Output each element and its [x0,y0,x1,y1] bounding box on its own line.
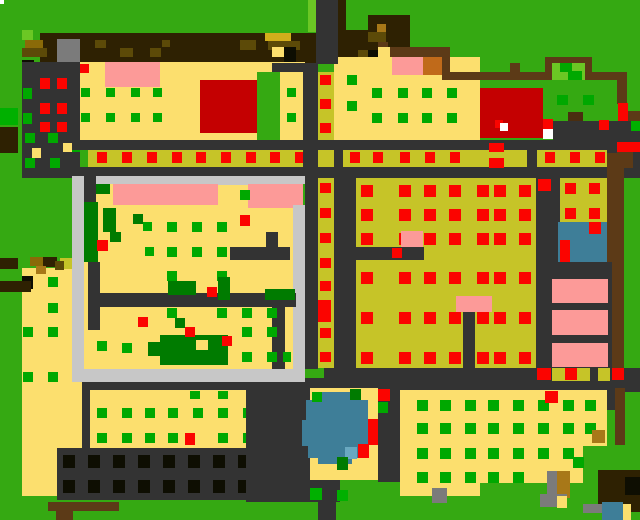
crop-dot [465,472,476,483]
dirt-speck [240,40,256,50]
bush [350,389,361,400]
crop-dot-red [449,185,461,197]
marker [560,240,570,262]
crop-dot [97,408,107,418]
path-red-south[interactable] [318,178,334,368]
path-dot [320,258,331,268]
road-main-horizontal [334,150,343,167]
marker [500,123,508,131]
crop-dot [167,222,177,232]
crop-dot-red [399,185,411,197]
lot-dot [48,133,58,143]
fence-wall[interactable] [448,72,618,80]
crop-dot [48,303,58,313]
lot-dot [32,148,41,158]
path-dot [565,368,577,380]
grass-strip [257,72,280,140]
crop-dot-red [361,209,373,221]
lot-dot [63,143,72,152]
road-bit [607,388,615,410]
field-southeast[interactable] [400,390,607,496]
crop-dot [267,327,277,337]
crop-dot-red [494,272,506,284]
path-dot [122,152,132,163]
parking-stall [188,480,200,493]
marker [599,120,609,130]
orchard-strip[interactable] [84,202,98,262]
path-dot [246,152,256,163]
crop-dot [513,448,524,459]
marker [318,300,331,322]
crop-dot [417,472,428,483]
crop-dot [218,433,228,443]
crop-dot-red [449,209,461,221]
crop-dot-red [361,312,373,324]
orchard [103,208,116,232]
crop-dot [513,423,524,434]
crop-dot [106,88,115,97]
road-main-horizontal[interactable] [72,140,640,150]
crop-dot [440,400,451,411]
rowhouse[interactable] [552,310,608,335]
parking-stall [63,455,75,468]
crop-dot-red [361,272,373,284]
crop-dot [283,352,291,362]
path-dot [537,368,551,380]
crop-dot [48,372,58,382]
marker [545,391,558,403]
crop-dot-red [449,272,461,284]
crop-dot [488,423,499,434]
shore [623,504,631,520]
crop-dot-red [424,233,436,245]
crop-dot [347,101,357,111]
pond-corner[interactable] [602,502,623,520]
crop-dot-red [477,272,489,284]
dirt-speck [95,40,106,48]
rowhouse[interactable] [552,343,608,367]
crop-dot [372,88,382,98]
crop-dot [131,113,140,122]
crop-dot [106,113,115,122]
crop-dot [422,88,432,98]
crop-dot [372,113,382,123]
path [583,504,603,513]
road-plaza-south[interactable] [246,390,310,482]
crop-dot-red [565,183,576,194]
dirt-speck [22,48,47,57]
path-dot [320,281,331,291]
path-dot [320,328,331,338]
crop-dot [145,247,154,256]
marker [489,158,504,168]
path-dot [450,152,460,163]
crop-dot-red [477,209,489,221]
parking-stall [63,480,75,493]
speck [55,261,64,270]
building-orange[interactable] [423,57,442,75]
crop-dot [417,448,428,459]
fence-wall [617,72,627,104]
crop-dot [23,372,33,382]
path-dot [595,152,605,163]
crop-dot [563,423,574,434]
crop-dot-red [519,185,531,197]
path-dot [612,368,624,380]
marker [489,143,504,152]
crop-dot-red [424,312,436,324]
crop-dot [153,88,162,97]
lot-dot [40,78,50,89]
game-map[interactable] [0,0,640,520]
lot-dot [23,113,32,124]
crop-dot [240,190,250,200]
lot-dot [57,122,67,132]
fence-wall[interactable] [390,47,450,57]
crop-dot [422,113,432,123]
crop-dot [145,433,155,443]
building-pink-ne[interactable] [392,57,423,75]
crop-dot-red [494,352,506,364]
hedge [265,289,295,300]
crop-dot-red [519,352,531,364]
marker [543,129,553,139]
fence-wall [628,111,640,121]
orchard [133,214,143,224]
crop-dot-red [519,272,531,284]
cursor-pixel [0,0,4,4]
crop-dot [48,277,58,287]
crop-dot-red [589,183,600,194]
crop-dot-red [477,352,489,364]
crop-dot-red [477,233,489,245]
path-dot [147,152,157,163]
path-dot [172,152,182,163]
building-pink-small[interactable] [401,231,423,247]
path-dot [320,352,331,362]
dirt-speck [120,48,133,57]
lot-dot [23,88,32,99]
road-north[interactable] [316,0,338,64]
fruit [97,240,108,251]
lot-dot [50,158,60,168]
crop-dot [81,113,90,122]
crop-dot-red [361,185,373,197]
path-dot [545,152,555,163]
fence-wall [510,63,520,72]
garden-wall-west[interactable] [72,176,84,382]
marker [617,142,640,152]
plaza-east[interactable] [553,121,640,141]
field-mustard-large[interactable] [356,178,536,368]
parking-stall [138,455,150,468]
lot-dot [57,103,67,114]
crop-dot [217,247,227,257]
crop-dot [122,408,132,418]
path-dot [97,152,107,163]
lane[interactable] [82,390,90,456]
crop-dot-red [449,352,461,364]
crop-dot-red [589,208,600,219]
pond-south[interactable] [306,400,368,422]
crop-dot-red [361,352,373,364]
crop-dot [242,327,252,337]
path-dot [400,152,410,163]
crop-dot-red [399,312,411,324]
stone [432,488,447,503]
crop-dot [465,423,476,434]
crop-dot [145,408,155,418]
clearing [196,340,208,350]
crop-dot [585,400,596,411]
crop-dot [218,408,228,418]
parking-stall [188,455,200,468]
crop-dot [573,457,584,468]
path-dot [373,152,383,163]
crop-dot-red [477,312,489,324]
crate [592,430,605,443]
stone-block[interactable] [57,39,80,63]
crop-dot [192,222,202,232]
crop-dot [347,75,357,85]
crop-dot [153,113,162,122]
orchard [96,184,110,194]
path-dot [320,233,331,243]
road-central-vertical[interactable] [305,178,318,369]
crop-dot [242,308,252,318]
bush-pen-wall [585,57,592,80]
wall-bit [615,388,625,445]
road-central-vertical[interactable] [334,178,356,368]
marker [538,179,551,191]
crop-dot-red [399,272,411,284]
tree-dot [557,95,568,105]
road-main-horizontal [303,150,318,167]
crop-dot-red [424,209,436,221]
speck [557,496,567,508]
path-dot [270,152,280,163]
path-dot [320,123,331,133]
tree-trunk [36,266,46,274]
crop-dot [465,448,476,459]
crop-dot-red [424,185,436,197]
marker [310,488,322,500]
crop-dot [417,400,428,411]
path-dot [350,152,360,163]
fruit [185,327,195,337]
crop-dot-red [494,312,506,324]
dirt-speck [162,40,170,47]
crop-dot [398,113,408,123]
crop-dot [287,113,296,122]
crop-dot [190,391,200,399]
path-dot [425,152,435,163]
crop-dot [168,433,178,443]
parking-stall [113,480,125,493]
lot-dot [25,158,35,168]
lot-dot [57,78,67,89]
crop-dot [218,391,228,399]
crop-dot [465,400,476,411]
crop-dot [538,423,549,434]
crop-dot [447,88,457,98]
crop-dot [563,400,574,411]
log [0,127,18,153]
crop-dot [23,327,33,337]
marker [79,64,89,73]
crop-dot [398,88,408,98]
marker [392,248,402,258]
lot-dot [40,122,50,132]
marker [589,222,601,234]
road-main-horizontal [527,150,537,167]
pond-south[interactable] [302,420,368,446]
crop-dot [48,327,58,337]
crop-dot [287,88,296,97]
lot-dot [40,103,50,114]
parking-stall [113,455,125,468]
path-dot [570,152,580,163]
path-dot [320,75,331,85]
marker [378,389,390,401]
fruit [222,336,232,346]
crop-dot-red [477,185,489,197]
crop-dot [131,88,140,97]
crop-dot-red [399,352,411,364]
road-vertical-short[interactable] [463,312,475,370]
crop-dot [81,88,90,97]
garden-wall-north [218,176,248,185]
field-wall[interactable] [343,247,424,260]
bush [568,71,582,80]
parking-stall [163,480,175,493]
crop-dot [217,308,227,318]
path-dot [320,208,331,218]
parking-stall [213,480,225,493]
crop-dot [122,343,132,353]
bush-pen-wall [545,57,552,80]
crop-dot [440,448,451,459]
crop-dot [167,271,177,281]
dirt-speck [284,47,296,63]
crop-dot [192,247,202,257]
parking-stall [138,480,150,493]
grass-highlight [22,30,33,40]
crop-dot [538,448,549,459]
crop-dot-red [494,185,506,197]
marker [631,121,640,131]
crop-dot-red [399,209,411,221]
crop-dot [97,341,107,351]
crop-dot [242,352,252,362]
fruit [185,433,195,445]
orchard [218,277,230,300]
lot-dot [25,133,35,143]
orchard [175,318,185,328]
bush [312,392,322,402]
orchard [168,281,196,295]
dirt-speck [150,48,161,57]
path-dot [221,152,231,163]
grass-patch [0,108,18,125]
crop-dot [97,433,107,443]
marker [358,444,369,458]
path-dot [320,183,331,193]
garden-wall-north[interactable] [72,176,305,184]
garden-inner-wall [84,176,96,204]
parking-stall [88,480,100,493]
crop-dot [168,408,178,418]
crop-dot-red [449,233,461,245]
crop-dot [167,247,177,257]
marker [618,103,628,121]
parking-stall [163,455,175,468]
crop-dot [488,472,499,483]
orchard-grove[interactable] [160,335,228,365]
tree-dot [583,95,594,105]
crop-dot [122,433,132,443]
crop-dot [267,308,277,318]
marker [543,119,553,129]
fruit [207,287,217,297]
log [0,258,18,269]
crop-dot [417,423,428,434]
parking-stall [213,455,225,468]
crop-dot [513,472,524,483]
path-southwest [56,502,73,520]
crop-dot [440,472,451,483]
path-red-bottom [598,368,610,381]
crop-dot-red [424,352,436,364]
dirt-speck [265,33,291,41]
dirt-edge [338,0,346,34]
tree-trunk [30,257,43,266]
path-dot [320,99,331,109]
garden-inner-wall[interactable] [230,247,290,260]
sapling [143,222,152,231]
crop-dot [193,408,203,418]
building-red-central[interactable] [200,80,257,133]
crop-dot [440,423,451,434]
rowhouse[interactable] [552,279,608,303]
crop-dot-red [449,312,461,324]
parking-stall [88,455,100,468]
crop-dot [513,400,524,411]
bush [337,457,348,470]
log [0,281,31,292]
fruit [240,215,250,226]
crop-dot-red [494,233,506,245]
crop-dot-red [361,233,373,245]
building-pink-small[interactable] [456,296,492,312]
garden-wall-south[interactable] [72,369,305,382]
crop-dot-red [519,233,531,245]
crop-dot [447,113,457,123]
marker [337,490,348,501]
garden-inner-wall [266,232,278,247]
crop-dot [267,352,277,362]
path-dot [196,152,206,163]
crop-dot [217,222,227,232]
crop-dot [488,448,499,459]
building-pink-nw[interactable] [105,62,160,87]
crop-dot [488,400,499,411]
fruit [138,317,148,327]
orchard [110,232,121,242]
crop-dot-red [519,312,531,324]
building-red-east[interactable] [480,88,543,138]
crop-dot-red [494,209,506,221]
